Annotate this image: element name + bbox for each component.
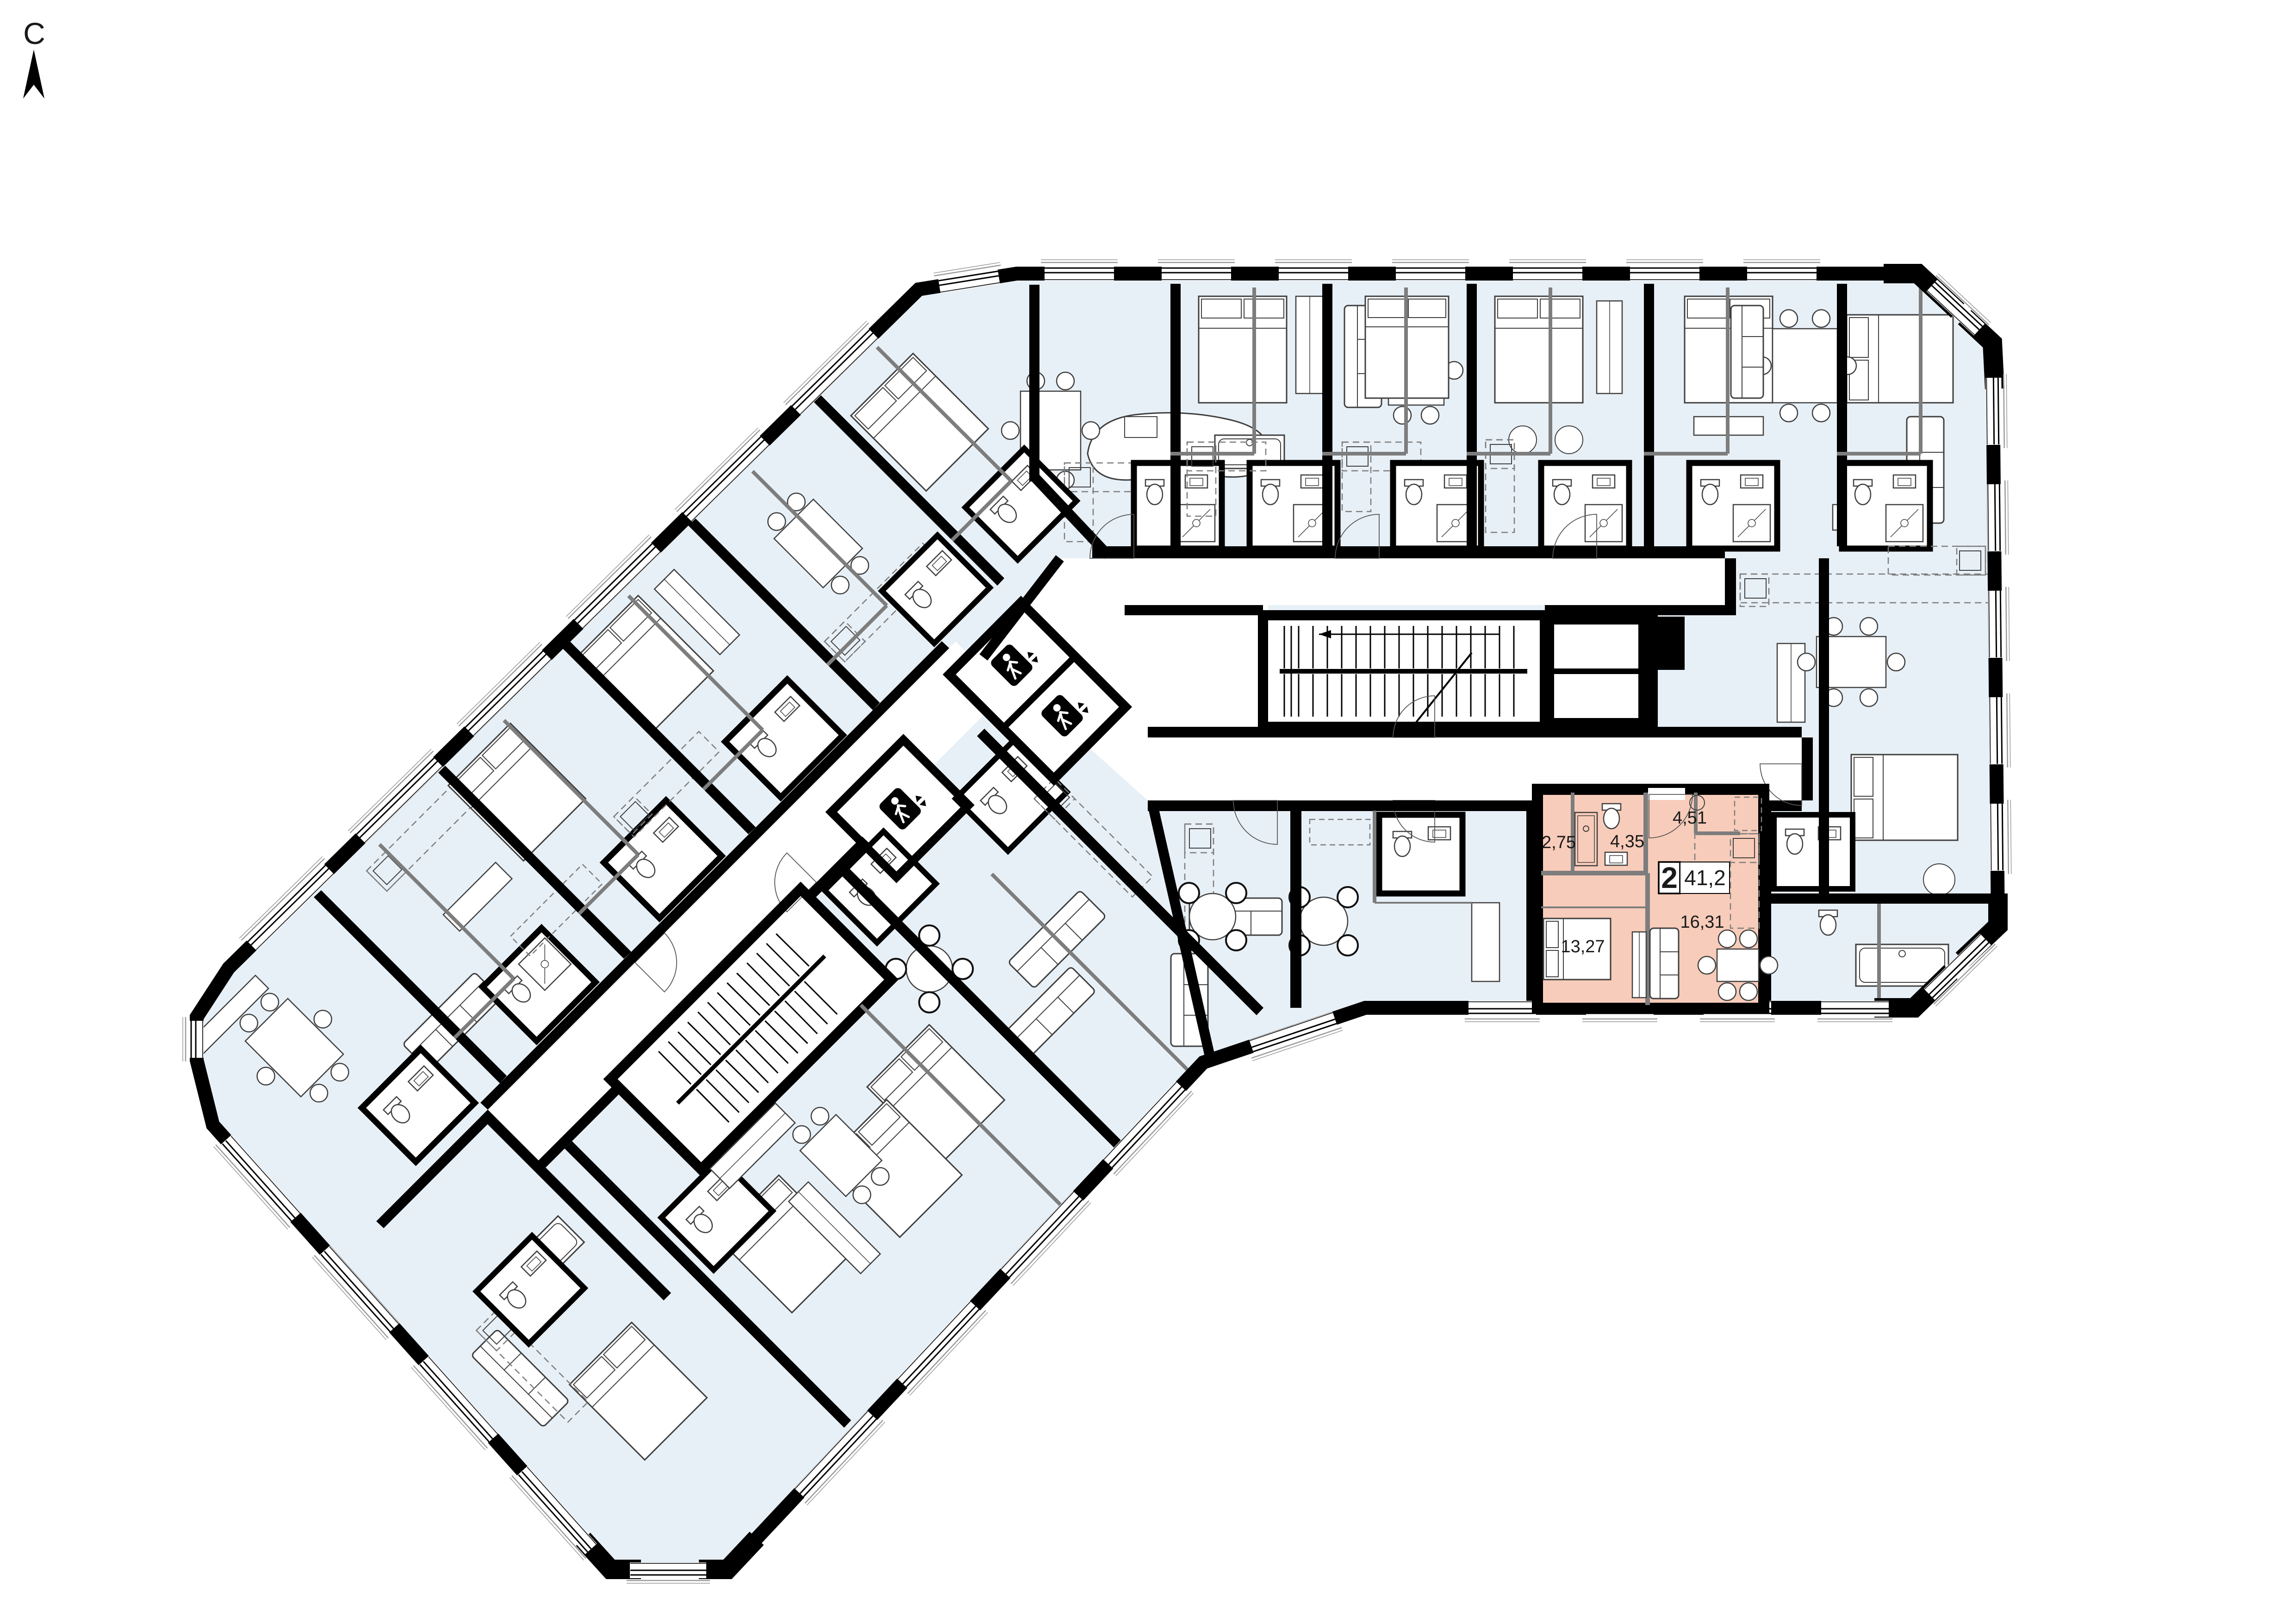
svg-text:2,75: 2,75 [1542, 833, 1576, 852]
svg-text:С: С [23, 16, 45, 50]
svg-text:4,35: 4,35 [1610, 832, 1644, 851]
svg-text:4,51: 4,51 [1673, 808, 1707, 828]
svg-text:2: 2 [1661, 861, 1678, 894]
svg-text:41,2: 41,2 [1684, 866, 1726, 890]
svg-text:13,27: 13,27 [1561, 937, 1605, 956]
svg-text:16,31: 16,31 [1680, 912, 1724, 932]
